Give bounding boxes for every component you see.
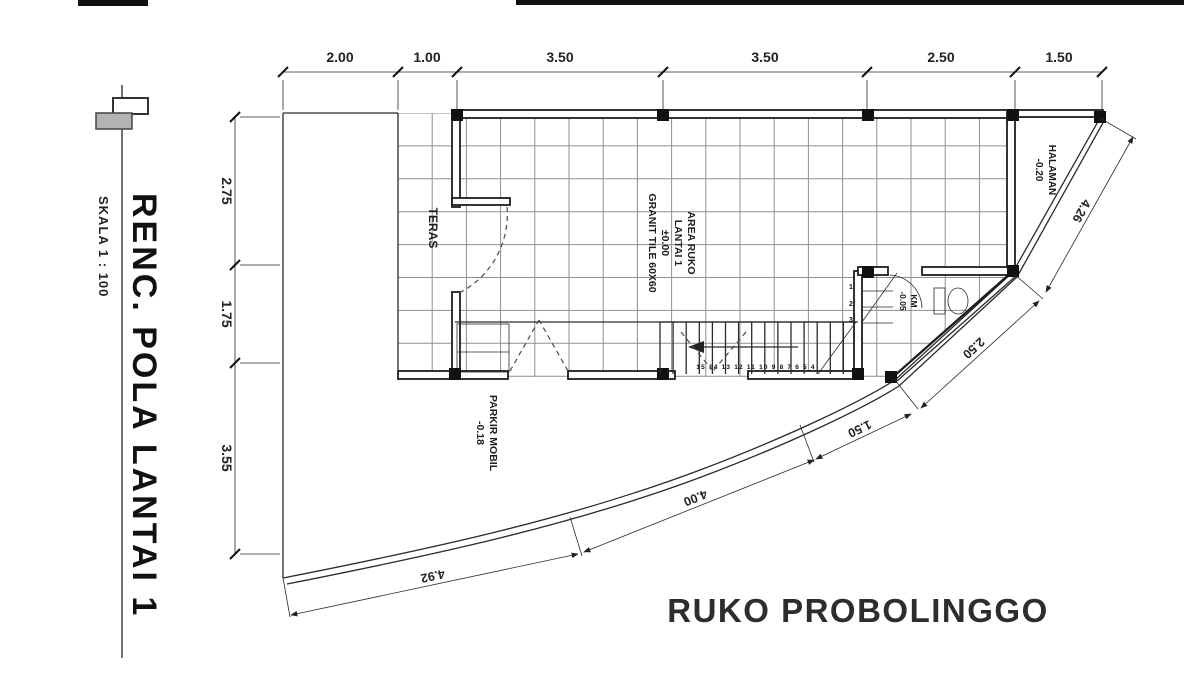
label-km-name: KM xyxy=(909,294,919,307)
dim-boundary-2: 4.00 xyxy=(682,487,710,509)
ext-b xyxy=(570,517,582,556)
dim-ticks-left xyxy=(230,112,280,559)
dim-top-1: 2.00 xyxy=(326,49,353,65)
dimension-chain-left: 2.75 1.75 3.55 xyxy=(219,112,280,559)
label-ruko-name: AREA RUKO xyxy=(685,211,697,274)
column-marker xyxy=(862,109,874,121)
tile-grid xyxy=(398,113,1014,377)
floor-plan-drawing: RENC. POLA LANTAI 1 SKALA 1 : 100 xyxy=(0,0,1200,698)
label-ruko-finish: GRANIT TILE 60X60 xyxy=(646,193,658,292)
dim-line-492 xyxy=(291,554,578,615)
room-labels: TERAS AREA RUKO LANTAI 1 ±0.00 GRANIT TI… xyxy=(426,145,1057,472)
scale-label: SKALA 1 : 100 xyxy=(96,196,111,297)
ext-d xyxy=(895,380,918,409)
planter-box xyxy=(457,324,509,372)
dim-ticks-top xyxy=(278,67,1107,110)
label-ruko-level: ±0.00 xyxy=(659,230,671,256)
column-marker xyxy=(1007,265,1019,277)
column-marker xyxy=(852,368,864,380)
dim-top-4: 3.50 xyxy=(751,49,778,65)
column-marker xyxy=(885,371,897,383)
title-block-symbol-outline xyxy=(113,98,148,114)
wall-left-upper xyxy=(452,112,460,207)
scan-artifacts xyxy=(78,0,1184,6)
wall-stair-km xyxy=(854,271,862,377)
label-halaman-level: -0.20 xyxy=(1033,159,1044,182)
label-km-level: -0.05 xyxy=(898,291,908,311)
column-marker xyxy=(451,109,463,121)
dim-top-3: 3.50 xyxy=(546,49,573,65)
dimension-chain-top: 2.00 1.00 3.50 3.50 2.50 1.50 xyxy=(278,49,1107,110)
stair-landing-number-2: 2 xyxy=(849,301,853,308)
column-marker xyxy=(449,368,461,380)
top-edge-bar xyxy=(516,0,1184,5)
wall-diagonal-inner xyxy=(897,275,1017,381)
ext-e xyxy=(1013,273,1043,299)
label-teras: TERAS xyxy=(426,208,440,249)
column-marker xyxy=(1094,111,1106,123)
dim-line-250 xyxy=(921,301,1039,408)
dim-left-1: 2.75 xyxy=(219,177,235,204)
label-parkir-level: -0.18 xyxy=(474,421,486,445)
dim-left-3: 3.55 xyxy=(219,444,235,471)
label-halaman-name: HALAMAN xyxy=(1046,145,1057,196)
dim-left-2: 1.75 xyxy=(219,300,235,327)
wall-right xyxy=(1007,112,1015,273)
column-marker xyxy=(657,109,669,121)
walls xyxy=(398,110,1103,381)
label-ruko-floor: LANTAI 1 xyxy=(672,220,684,267)
dim-boundary-5: 4.26 xyxy=(1069,197,1093,225)
label-parkir-name: PARKIR MOBIL xyxy=(487,395,499,472)
stair-landing-diagonal xyxy=(862,273,897,322)
floor-plan-sheet: RENC. POLA LANTAI 1 SKALA 1 : 100 xyxy=(0,0,1200,698)
dim-boundary-4: 2.50 xyxy=(960,335,987,362)
dim-top-6: 1.50 xyxy=(1045,49,1072,65)
project-title: RUKO PROBOLINGGO xyxy=(667,592,1049,629)
wall-stub-entry xyxy=(452,198,510,205)
dim-top-2: 1.00 xyxy=(413,49,440,65)
title-block: RENC. POLA LANTAI 1 SKALA 1 : 100 xyxy=(96,85,163,658)
column-marker xyxy=(862,266,874,278)
dim-top-5: 2.50 xyxy=(927,49,954,65)
column-marker xyxy=(657,368,669,380)
double-door-front xyxy=(510,320,568,371)
column-marker xyxy=(1007,109,1019,121)
drawing-title: RENC. POLA LANTAI 1 xyxy=(125,193,163,618)
wall-left-lower xyxy=(452,292,460,377)
dim-boundary-3: 1.50 xyxy=(846,417,874,440)
road-boundary-outer xyxy=(287,121,1104,584)
top-left-mark xyxy=(78,0,148,6)
dim-line-426 xyxy=(1046,137,1133,292)
title-block-symbol-fill xyxy=(96,113,132,129)
wall-halaman-top xyxy=(1013,110,1103,117)
wall-km-top-2 xyxy=(922,267,1015,275)
ext-f xyxy=(1100,118,1136,139)
wall-top xyxy=(452,110,1015,118)
stair-landing-number-1: 1 xyxy=(849,284,853,291)
stair-break-line xyxy=(818,322,856,374)
stair-landing-number-3: 3 xyxy=(849,317,853,324)
dim-line-400 xyxy=(584,460,814,552)
